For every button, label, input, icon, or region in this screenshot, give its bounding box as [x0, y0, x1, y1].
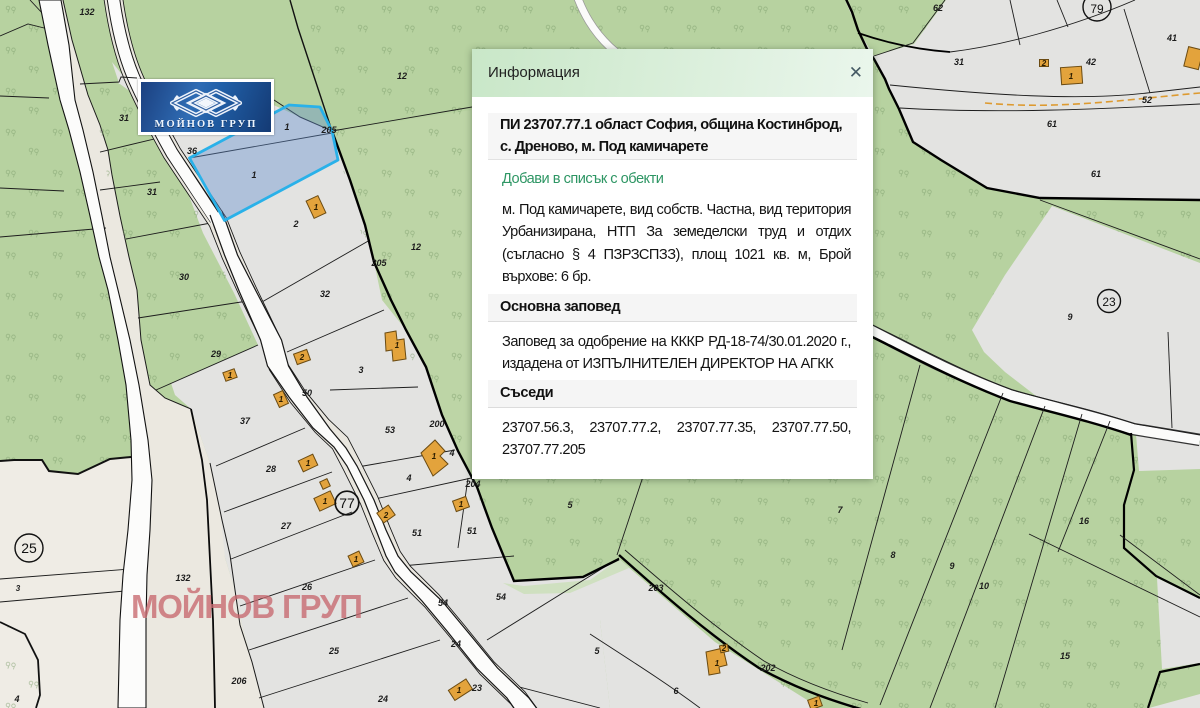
svg-text:1: 1	[284, 122, 289, 132]
svg-text:132: 132	[175, 573, 190, 583]
svg-text:1: 1	[251, 170, 256, 180]
svg-text:62: 62	[933, 3, 943, 13]
svg-text:41: 41	[1166, 33, 1177, 43]
svg-text:205: 205	[370, 258, 387, 268]
svg-text:24: 24	[450, 639, 461, 649]
svg-text:28: 28	[265, 464, 276, 474]
svg-text:16: 16	[1079, 516, 1090, 526]
svg-text:12: 12	[411, 242, 421, 252]
svg-text:51: 51	[467, 526, 477, 536]
svg-text:1: 1	[354, 555, 359, 564]
svg-text:9: 9	[949, 561, 954, 571]
svg-text:27: 27	[280, 521, 292, 531]
svg-text:3: 3	[358, 365, 363, 375]
svg-text:3: 3	[16, 584, 21, 593]
svg-text:61: 61	[1047, 119, 1057, 129]
svg-text:24: 24	[377, 694, 388, 704]
svg-text:54: 54	[438, 598, 448, 608]
svg-text:31: 31	[147, 187, 157, 197]
svg-text:203: 203	[647, 583, 663, 593]
svg-text:36: 36	[187, 146, 198, 156]
svg-text:31: 31	[119, 113, 129, 123]
svg-text:79: 79	[1090, 2, 1104, 16]
svg-text:37: 37	[240, 416, 251, 426]
svg-text:77: 77	[339, 495, 355, 511]
svg-text:1: 1	[306, 459, 311, 468]
svg-text:1: 1	[323, 497, 328, 506]
svg-text:31: 31	[954, 57, 964, 67]
svg-text:1: 1	[1069, 72, 1074, 81]
svg-text:10: 10	[979, 581, 989, 591]
svg-text:29: 29	[210, 349, 221, 359]
svg-text:200: 200	[428, 419, 444, 429]
svg-text:53: 53	[385, 425, 395, 435]
svg-text:54: 54	[496, 592, 506, 602]
svg-text:1: 1	[457, 686, 462, 695]
svg-text:202: 202	[759, 663, 775, 673]
svg-text:1: 1	[715, 659, 720, 668]
svg-text:1: 1	[459, 500, 464, 509]
svg-text:51: 51	[412, 528, 422, 538]
svg-text:32: 32	[320, 289, 330, 299]
svg-text:1: 1	[314, 203, 319, 212]
svg-text:1: 1	[814, 699, 819, 708]
svg-text:1: 1	[279, 395, 284, 404]
svg-text:205: 205	[320, 125, 337, 135]
svg-text:1: 1	[228, 371, 233, 380]
svg-text:50: 50	[302, 388, 312, 398]
svg-text:1: 1	[395, 341, 400, 350]
svg-text:4: 4	[448, 448, 454, 458]
svg-text:9: 9	[1067, 312, 1072, 322]
svg-text:25: 25	[21, 540, 37, 556]
svg-text:12: 12	[397, 71, 407, 81]
svg-text:132: 132	[79, 7, 94, 17]
svg-text:2: 2	[1041, 59, 1047, 68]
svg-text:8: 8	[890, 550, 895, 560]
svg-text:15: 15	[1060, 651, 1071, 661]
svg-text:206: 206	[230, 676, 247, 686]
svg-text:52: 52	[1142, 95, 1152, 105]
svg-text:61: 61	[1091, 169, 1101, 179]
svg-text:2: 2	[721, 644, 727, 653]
svg-text:204: 204	[464, 479, 480, 489]
svg-text:2: 2	[292, 219, 298, 229]
svg-text:2: 2	[299, 353, 305, 362]
svg-text:30: 30	[179, 272, 189, 282]
svg-text:23: 23	[471, 683, 482, 693]
svg-text:25: 25	[328, 646, 340, 656]
svg-text:42: 42	[1085, 57, 1096, 67]
svg-text:4: 4	[13, 694, 19, 704]
svg-text:1: 1	[432, 452, 437, 461]
svg-text:23: 23	[1102, 295, 1116, 309]
svg-text:2: 2	[383, 511, 389, 520]
svg-text:4: 4	[405, 473, 411, 483]
